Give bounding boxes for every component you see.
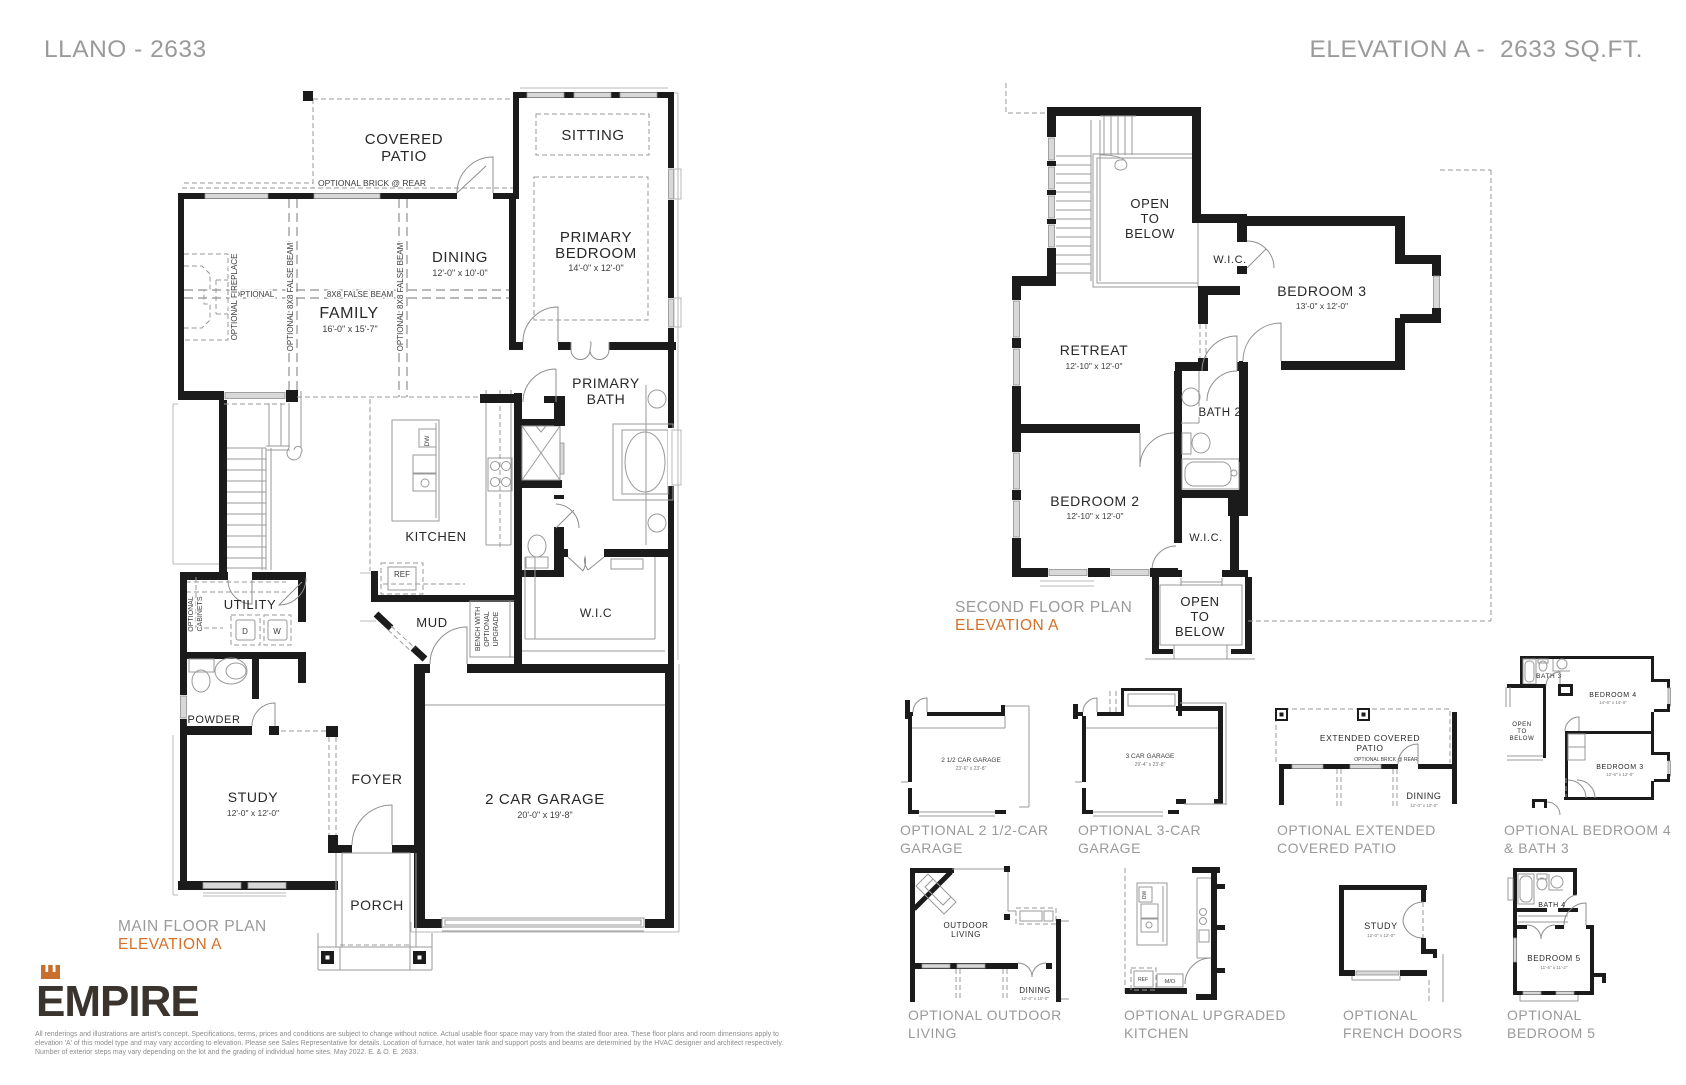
svg-text:BENCH WITH: BENCH WITH	[475, 607, 482, 651]
svg-text:16'-0" x 15'-7": 16'-0" x 15'-7"	[322, 324, 377, 334]
svg-text:DW: DW	[424, 435, 431, 447]
svg-text:OPTIONAL: OPTIONAL	[234, 290, 275, 299]
svg-text:DINING: DINING	[432, 249, 488, 266]
svg-text:REF: REF	[394, 570, 410, 579]
svg-text:GARAGE: GARAGE	[900, 840, 963, 856]
svg-text:11'-6" x 11'-2": 11'-6" x 11'-2"	[1540, 965, 1567, 970]
svg-text:BEDROOM 5: BEDROOM 5	[1507, 1025, 1596, 1041]
svg-text:12'-0" x 12'-0": 12'-0" x 12'-0"	[227, 808, 279, 818]
svg-text:OPTIONAL: OPTIONAL	[484, 611, 491, 647]
svg-text:EXTENDED COVERED: EXTENDED COVERED	[1320, 733, 1420, 743]
svg-text:20'-0" x 19'-8": 20'-0" x 19'-8"	[517, 810, 572, 820]
svg-text:& BATH 3: & BATH 3	[1504, 840, 1569, 856]
svg-text:TO: TO	[1190, 609, 1209, 624]
svg-text:BATH 4: BATH 4	[1538, 902, 1566, 909]
svg-text:W.I.C: W.I.C	[580, 606, 612, 620]
svg-text:LIVING: LIVING	[908, 1025, 957, 1041]
svg-text:RETREAT: RETREAT	[1060, 342, 1129, 358]
svg-text:LIVING: LIVING	[951, 930, 981, 939]
svg-text:DINING: DINING	[1406, 791, 1441, 801]
svg-text:29'-4" x 23'-8": 29'-4" x 23'-8"	[1135, 762, 1166, 768]
svg-text:SECOND FLOOR PLAN: SECOND FLOOR PLAN	[955, 599, 1132, 616]
svg-text:BEDROOM 2: BEDROOM 2	[1050, 493, 1139, 509]
svg-text:13'-0" x 12'-0": 13'-0" x 12'-0"	[1296, 301, 1348, 311]
svg-text:OPTIONAL OUTDOOR: OPTIONAL OUTDOOR	[908, 1007, 1062, 1023]
svg-text:D: D	[242, 627, 248, 636]
svg-text:OPTIONAL EXTENDED: OPTIONAL EXTENDED	[1277, 822, 1436, 838]
svg-text:OPTIONAL: OPTIONAL	[188, 596, 195, 632]
svg-text:Number of exterior steps may v: Number of exterior steps may vary depend…	[35, 1049, 418, 1056]
svg-text:M/O: M/O	[1165, 979, 1176, 985]
svg-text:ELEVATION A: ELEVATION A	[118, 936, 222, 953]
svg-text:OPTIONAL 3-CAR: OPTIONAL 3-CAR	[1078, 822, 1201, 838]
svg-text:12'-0" x 12'-0": 12'-0" x 12'-0"	[1367, 933, 1395, 938]
svg-text:BATH 3: BATH 3	[1536, 673, 1562, 680]
svg-text:MAIN FLOOR PLAN: MAIN FLOOR PLAN	[118, 918, 267, 935]
svg-text:KITCHEN: KITCHEN	[1124, 1025, 1189, 1041]
svg-text:OPTIONAL UPGRADED: OPTIONAL UPGRADED	[1124, 1007, 1286, 1023]
svg-text:TO: TO	[1140, 211, 1159, 226]
svg-text:OPEN: OPEN	[1512, 722, 1531, 728]
svg-text:BEDROOM 4: BEDROOM 4	[1589, 692, 1636, 699]
svg-text:OPTIONAL 8X8 FALSE BEAM: OPTIONAL 8X8 FALSE BEAM	[286, 242, 295, 351]
svg-text:BATH: BATH	[587, 391, 626, 407]
svg-text:BELOW: BELOW	[1125, 226, 1175, 241]
svg-text:W: W	[273, 627, 281, 636]
svg-text:12'-0" x 10'-0": 12'-0" x 10'-0"	[1021, 996, 1049, 1001]
svg-text:OPTIONAL FIREPLACE: OPTIONAL FIREPLACE	[230, 254, 239, 341]
svg-text:W.I.C.: W.I.C.	[1189, 532, 1223, 544]
svg-text:2 CAR GARAGE: 2 CAR GARAGE	[485, 791, 605, 808]
svg-text:BELOW: BELOW	[1175, 624, 1225, 639]
svg-text:OPEN: OPEN	[1130, 196, 1169, 211]
svg-text:SITTING: SITTING	[561, 127, 624, 144]
svg-text:23'-6" x 23'-8": 23'-6" x 23'-8"	[956, 766, 987, 772]
svg-text:BEDROOM 5: BEDROOM 5	[1527, 954, 1580, 963]
svg-text:KITCHEN: KITCHEN	[405, 529, 466, 544]
svg-text:12'-6" x 12'-0": 12'-6" x 12'-0"	[1606, 772, 1634, 777]
svg-text:DINING: DINING	[1019, 986, 1051, 995]
svg-text:OPTIONAL BEDROOM 4: OPTIONAL BEDROOM 4	[1504, 822, 1671, 838]
svg-text:STUDY: STUDY	[228, 789, 279, 805]
svg-text:OPTIONAL: OPTIONAL	[1343, 1007, 1418, 1023]
svg-text:STUDY: STUDY	[1364, 921, 1398, 931]
svg-text:OPTIONAL BRICK @ REAR: OPTIONAL BRICK @ REAR	[1354, 757, 1418, 763]
svg-text:GARAGE: GARAGE	[1078, 840, 1141, 856]
svg-text:PATIO: PATIO	[1356, 743, 1383, 753]
svg-text:OPTIONAL 8X8 FALSE BEAM: OPTIONAL 8X8 FALSE BEAM	[396, 242, 405, 351]
svg-text:UPGRADE: UPGRADE	[493, 611, 500, 646]
svg-text:12'-10" x 12'-0": 12'-10" x 12'-0"	[1066, 511, 1123, 521]
svg-text:FAMILY: FAMILY	[319, 305, 378, 322]
svg-text:DW: DW	[1142, 891, 1148, 900]
svg-text:8X8 FALSE BEAM: 8X8 FALSE BEAM	[327, 290, 394, 299]
svg-text:2 1/2 CAR GARAGE: 2 1/2 CAR GARAGE	[941, 757, 1001, 764]
svg-text:FOYER: FOYER	[351, 771, 402, 787]
svg-text:COVERED PATIO: COVERED PATIO	[1277, 840, 1397, 856]
svg-text:COVERED: COVERED	[365, 131, 443, 148]
svg-text:PATIO: PATIO	[381, 148, 427, 165]
svg-text:PRIMARY: PRIMARY	[572, 375, 640, 391]
svg-text:FRENCH DOORS: FRENCH DOORS	[1343, 1025, 1463, 1041]
svg-text:PRIMARY: PRIMARY	[560, 229, 632, 246]
svg-text:UTILITY: UTILITY	[224, 597, 277, 612]
svg-text:All renderings and illustratio: All renderings and illustrations are art…	[35, 1031, 779, 1038]
svg-text:14'-0" x 12'-0": 14'-0" x 12'-0"	[568, 263, 623, 273]
svg-text:OUTDOOR: OUTDOOR	[943, 921, 988, 930]
svg-text:LLANO - 2633: LLANO - 2633	[44, 36, 207, 63]
svg-text:BEDROOM 3: BEDROOM 3	[1277, 283, 1366, 299]
svg-text:PORCH: PORCH	[350, 897, 404, 913]
svg-text:12'-0" x 10'-0": 12'-0" x 10'-0"	[1410, 803, 1438, 808]
svg-text:MUD: MUD	[416, 615, 447, 630]
svg-text:EMPIRE: EMPIRE	[36, 977, 199, 1026]
svg-text:12'-10" x 12'-0": 12'-10" x 12'-0"	[1065, 361, 1122, 371]
svg-text:POWDER: POWDER	[187, 714, 240, 726]
svg-text:elevation 'A' of this model ty: elevation 'A' of this model type and may…	[35, 1040, 783, 1047]
svg-text:OPTIONAL: OPTIONAL	[1507, 1007, 1582, 1023]
svg-text:3 CAR GARAGE: 3 CAR GARAGE	[1126, 753, 1175, 760]
svg-text:14'-6" x 14'-0": 14'-6" x 14'-0"	[1599, 700, 1627, 705]
svg-text:ELEVATION A: ELEVATION A	[955, 617, 1059, 634]
svg-text:BELOW: BELOW	[1510, 736, 1535, 742]
svg-text:BATH 2: BATH 2	[1198, 407, 1241, 419]
svg-text:ELEVATION A - 2633 SQ.FT.: ELEVATION A - 2633 SQ.FT.	[1310, 36, 1643, 63]
svg-text:OPTIONAL BRICK @ REAR: OPTIONAL BRICK @ REAR	[318, 178, 426, 188]
svg-text:12'-0" x 10'-0": 12'-0" x 10'-0"	[432, 268, 487, 278]
svg-text:BEDROOM 3: BEDROOM 3	[1596, 764, 1643, 771]
svg-text:BEDROOM: BEDROOM	[555, 245, 637, 262]
svg-text:W.I.C.: W.I.C.	[1213, 254, 1247, 266]
svg-text:CABINETS: CABINETS	[197, 596, 204, 631]
svg-text:OPEN: OPEN	[1180, 594, 1219, 609]
svg-text:REF: REF	[1138, 977, 1148, 983]
svg-text:OPTIONAL 2 1/2-CAR: OPTIONAL 2 1/2-CAR	[900, 822, 1049, 838]
svg-text:TO: TO	[1517, 729, 1526, 735]
